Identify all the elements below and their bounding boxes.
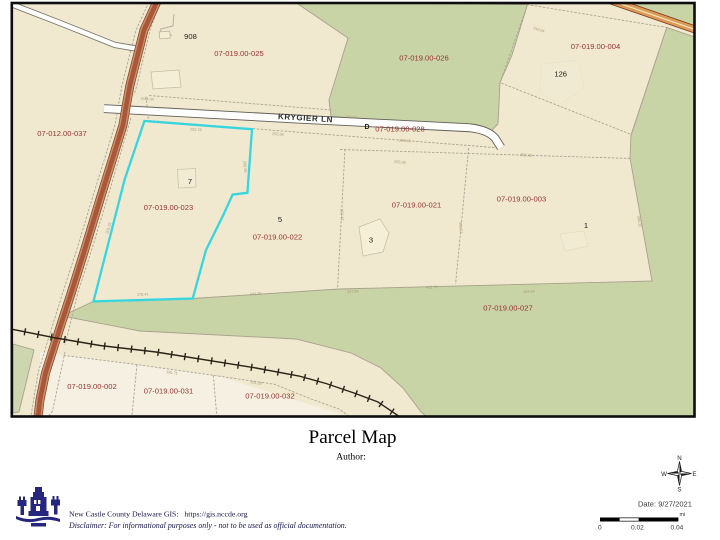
svg-text:255.56: 255.56 [272,132,284,137]
svg-text:07-019.00-023: 07-019.00-023 [144,203,193,212]
svg-text:433.59: 433.59 [523,290,535,294]
svg-text:New Castle County Delaware GIS: New Castle County Delaware GIS: https://… [69,510,248,519]
svg-text:206.15: 206.15 [399,139,411,144]
svg-text:908: 908 [184,32,197,41]
svg-text:0.04: 0.04 [671,525,684,532]
svg-text:mi: mi [680,512,686,518]
svg-text:278.41: 278.41 [137,292,149,297]
svg-text:D: D [365,124,370,131]
svg-text:07-019.00-027: 07-019.00-027 [483,304,532,313]
svg-text:0.02: 0.02 [631,525,644,532]
svg-text:247.99: 247.99 [347,290,359,294]
svg-text:07-012.00-037: 07-012.00-037 [37,129,86,138]
svg-text:S: S [677,487,681,494]
svg-text:07-019.00-026: 07-019.00-026 [399,54,448,63]
svg-text:07-019.00-021: 07-019.00-021 [392,201,441,210]
svg-text:07-019.00-032: 07-019.00-032 [245,392,294,401]
svg-text:Disclaimer: For informational: Disclaimer: For informational purposes o… [68,521,347,530]
svg-text:N: N [677,455,681,462]
svg-text:1: 1 [584,221,588,230]
svg-text:202.76: 202.76 [190,128,202,133]
svg-text:358.38: 358.38 [520,153,532,158]
svg-text:07-019.00-003: 07-019.00-003 [497,195,546,204]
svg-text:Author:: Author: [336,453,366,463]
svg-text:07-019.00-004: 07-019.00-004 [571,42,620,51]
svg-text:07-019.00-028: 07-019.00-028 [375,125,424,134]
svg-text:E: E [692,471,696,478]
svg-text:07-019.00-031: 07-019.00-031 [144,387,193,396]
svg-text:07-019.00-002: 07-019.00-002 [67,382,116,391]
svg-text:0: 0 [598,525,602,532]
svg-text:206.05: 206.05 [243,161,248,173]
svg-text:07-019.00-022: 07-019.00-022 [253,233,302,242]
svg-text:W: W [661,471,667,478]
svg-text:Parcel Map: Parcel Map [309,427,397,448]
svg-text:Date: 9/27/2021: Date: 9/27/2021 [638,500,692,509]
svg-text:07-019.00-025: 07-019.00-025 [214,49,263,58]
svg-text:164.04: 164.04 [345,115,357,120]
svg-text:255.38: 255.38 [394,160,406,165]
svg-text:5: 5 [278,215,282,224]
svg-text:412.78: 412.78 [426,285,438,289]
svg-text:3: 3 [369,236,373,245]
svg-text:126: 126 [554,70,567,79]
svg-text:243.06: 243.06 [250,292,262,297]
svg-text:7: 7 [188,177,192,186]
svg-text:352.42: 352.42 [340,209,345,221]
